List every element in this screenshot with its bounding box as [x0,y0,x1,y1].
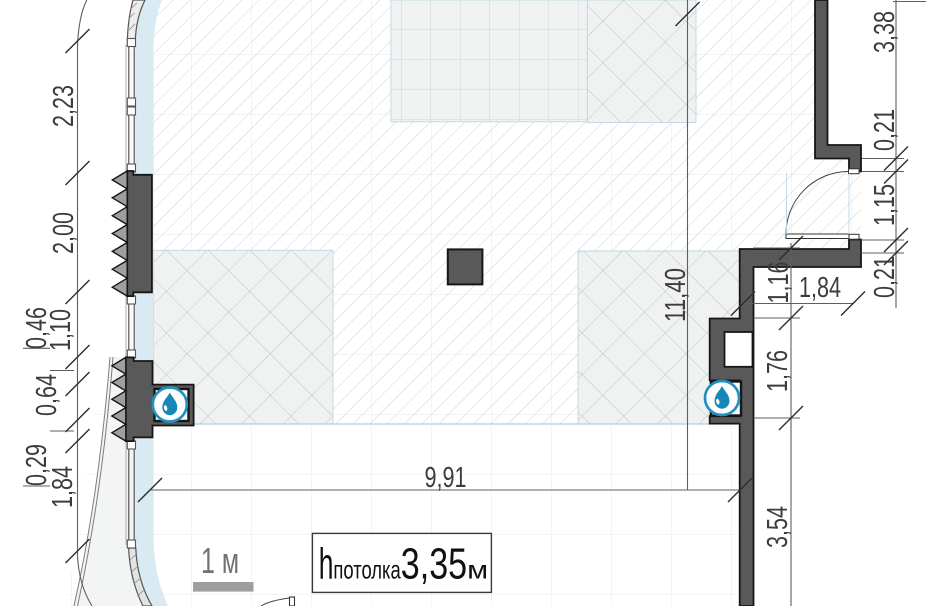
svg-text:11,40: 11,40 [660,268,692,322]
svg-text:2,00: 2,00 [48,212,80,254]
svg-text:0,21: 0,21 [869,109,901,151]
svg-text:0,21: 0,21 [869,256,901,298]
svg-text:h: h [319,540,334,589]
svg-text:1,10: 1,10 [45,309,77,351]
svg-text:1,84: 1,84 [47,466,79,508]
svg-text:0,64: 0,64 [31,374,63,416]
svg-text:1,15: 1,15 [869,184,901,226]
svg-text:3,35: 3,35 [401,540,467,589]
svg-text:2,23: 2,23 [48,85,80,127]
svg-text:3,54: 3,54 [762,506,794,548]
svg-text:1,76: 1,76 [762,350,794,392]
svg-text:3,38: 3,38 [869,11,901,53]
svg-text:1 м: 1 м [201,540,239,581]
svg-text:1,16: 1,16 [763,262,795,304]
svg-text:м: м [467,555,488,585]
svg-text:потолка: потолка [333,555,401,585]
svg-text:1,84: 1,84 [799,272,841,304]
svg-text:9,91: 9,91 [425,462,467,494]
